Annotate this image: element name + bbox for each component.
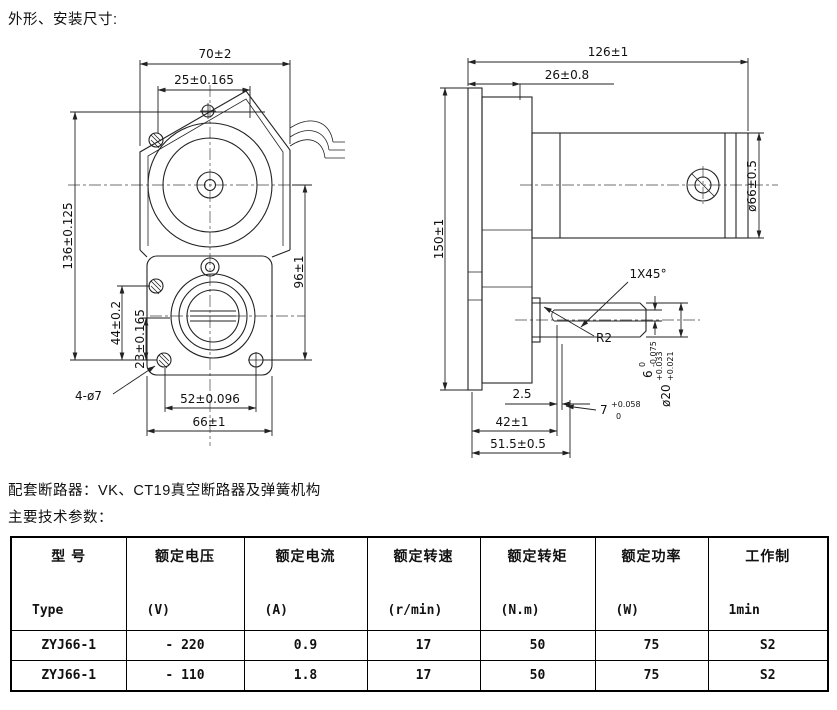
cell-current: 0.9 [244, 631, 367, 661]
cell-speed: 17 [367, 661, 480, 692]
parameters-table: 型 号 Type 额定电压 (V) 额定电流 (A) 额定转速 (r/min) … [10, 536, 829, 692]
cell-speed: 17 [367, 631, 480, 661]
dim-51-5-label: 51.5±0.5 [490, 437, 546, 451]
motor-wires [290, 121, 345, 158]
cell-voltage: - 110 [126, 661, 244, 692]
header-cell-speed: 额定转速 (r/min) [367, 537, 480, 631]
dim-2-5-label: 2.5 [512, 387, 531, 401]
dim-66-label: 66±1 [193, 415, 226, 429]
holes-note-label: 4-ø7 [75, 389, 102, 403]
datasheet-page: 外形、安装尺寸: [0, 0, 837, 710]
dim-dia66-label: ø66±0.5 [745, 160, 759, 212]
chamfer-label: 1X45° [629, 267, 666, 281]
dim-96-label: 96±1 [292, 256, 306, 289]
dim-26-label: 26±0.8 [545, 68, 589, 82]
svg-text:ø20: ø20 [659, 384, 673, 407]
dim-42-label: 42±1 [496, 415, 529, 429]
table-row: ZYJ66-1 - 110 1.8 17 50 75 S2 [11, 661, 828, 692]
header-cell-type: 型 号 Type [11, 537, 126, 631]
shaft-dia-label: ø20 +0.033 +0.021 [655, 351, 675, 407]
params-heading: 主要技术参数： [8, 506, 113, 527]
dim-25-top-label: 25±0.165 [174, 73, 234, 87]
dim-52-label: 52±0.096 [180, 392, 240, 406]
cell-power: 75 [595, 661, 708, 692]
dim-126-label: 126±1 [588, 45, 629, 59]
cell-duty: S2 [708, 631, 828, 661]
dim-150-label: 150±1 [432, 219, 446, 260]
fillet-label: R2 [596, 331, 612, 345]
cell-voltage: - 220 [126, 631, 244, 661]
header-cell-torque: 额定转矩 (N.m) [480, 537, 595, 631]
header-row: 型 号 Type 额定电压 (V) 额定电流 (A) 额定转速 (r/min) … [11, 537, 828, 631]
header-cell-current: 额定电流 (A) [244, 537, 367, 631]
svg-text:+0.033: +0.033 [655, 351, 664, 381]
cell-torque: 50 [480, 631, 595, 661]
breaker-note: 配套断路器：VK、CT19真空断路器及弹簧机构 [8, 479, 321, 500]
cell-current: 1.8 [244, 661, 367, 692]
cell-model: ZYJ66-1 [11, 661, 126, 692]
side-view: 126±1 26±0.8 150±1 ø66±0.5 1X45° R2 [432, 45, 778, 458]
dim-136-label: 136±0.125 [61, 202, 75, 269]
dim-44-label: 44±0.2 [109, 301, 123, 345]
front-view-dimensions: 70±2 25±0.165 136±0.125 44±0.2 23±0.165 … [61, 47, 312, 436]
side-view-centerlines [515, 166, 778, 320]
header-cell-power: 额定功率 (W) [595, 537, 708, 631]
svg-text:0: 0 [616, 412, 621, 421]
svg-text:6: 6 [641, 370, 655, 378]
table-row: ZYJ66-1 - 220 0.9 17 50 75 S2 [11, 631, 828, 661]
front-view: 70±2 25±0.165 136±0.125 44±0.2 23±0.165 … [61, 47, 345, 446]
cell-torque: 50 [480, 661, 595, 692]
cell-model: ZYJ66-1 [11, 631, 126, 661]
svg-text:7: 7 [600, 403, 608, 417]
svg-text:+0.058: +0.058 [611, 400, 641, 409]
dimension-drawings: 70±2 25±0.165 136±0.125 44±0.2 23±0.165 … [0, 0, 837, 478]
key-height-label: 7 +0.058 0 [600, 400, 641, 421]
cell-power: 75 [595, 631, 708, 661]
svg-text:0: 0 [638, 362, 647, 367]
dim-23-label: 23±0.165 [133, 309, 147, 369]
header-cell-voltage: 额定电压 (V) [126, 537, 244, 631]
svg-text:+0.021: +0.021 [666, 351, 675, 381]
header-cell-duty: 工作制 1min [708, 537, 828, 631]
front-view-outline [140, 91, 290, 375]
cell-duty: S2 [708, 661, 828, 692]
dim-70-label: 70±2 [199, 47, 232, 61]
